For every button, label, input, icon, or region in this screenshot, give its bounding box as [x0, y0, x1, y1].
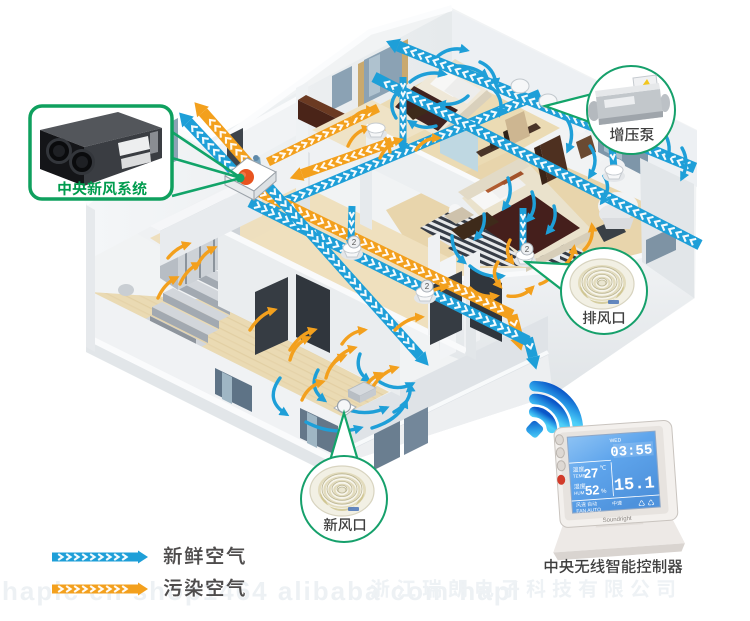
svg-text:52: 52: [584, 482, 599, 498]
svg-text:2: 2: [525, 245, 530, 254]
svg-text:27: 27: [583, 465, 598, 481]
svg-text:WED: WED: [609, 437, 621, 444]
svg-text:2: 2: [352, 238, 357, 247]
svg-text:♺ ♺: ♺ ♺: [638, 498, 655, 508]
svg-text:03:55: 03:55: [610, 442, 653, 461]
svg-text:2: 2: [425, 282, 430, 291]
svg-text:HUM: HUM: [574, 490, 585, 496]
svg-text:15.1: 15.1: [613, 474, 655, 496]
svg-text:℃: ℃: [599, 466, 606, 472]
